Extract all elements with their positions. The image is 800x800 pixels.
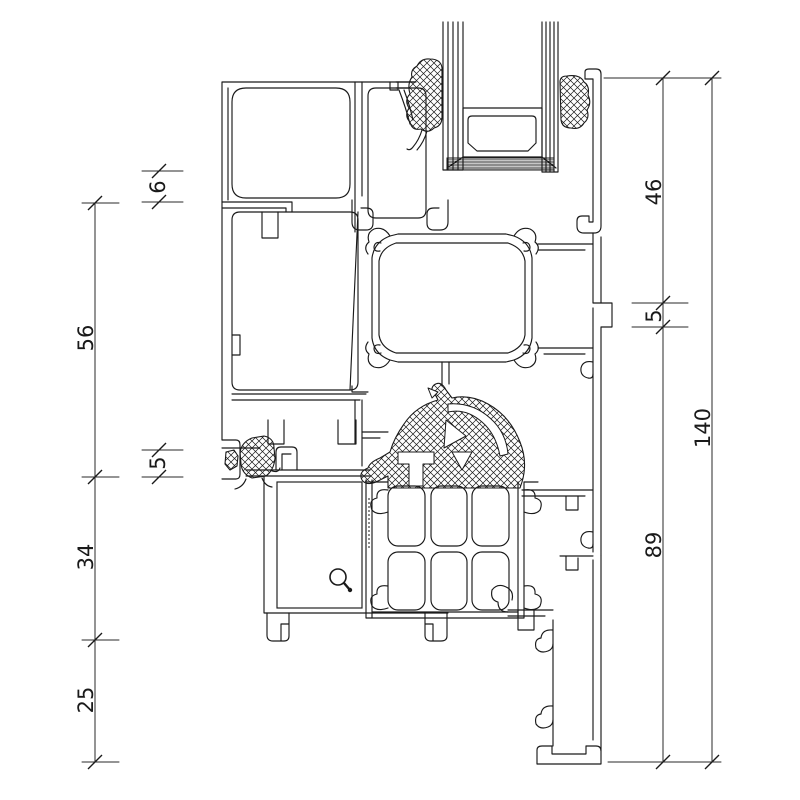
thermal-break-zone bbox=[366, 480, 541, 618]
sash-octagon-chamber bbox=[352, 228, 538, 392]
dim-label-34: 34 bbox=[74, 544, 98, 571]
dimension-ticks bbox=[88, 71, 719, 769]
sealant-band bbox=[447, 158, 554, 170]
frame-seal-left bbox=[222, 436, 297, 489]
dim-label-56: 56 bbox=[74, 325, 98, 352]
dim-label-25: 25 bbox=[74, 687, 98, 714]
lower-sash bbox=[246, 470, 448, 641]
lower-right-channel bbox=[492, 556, 601, 764]
dim-label-89: 89 bbox=[642, 532, 666, 559]
dim-label-6: 6 bbox=[146, 180, 170, 193]
right-glazing-gasket bbox=[560, 76, 590, 129]
left-glazing-gasket bbox=[407, 59, 442, 131]
octagon-gasket bbox=[240, 436, 275, 478]
glazing-unit bbox=[443, 22, 558, 172]
glazing-gaskets bbox=[396, 59, 590, 150]
dimension-annotations: 6 56 5 34 25 46 5 89 140 bbox=[74, 71, 721, 769]
dim-label-5-left: 5 bbox=[146, 456, 170, 469]
profile-section-drawing: 6 56 5 34 25 46 5 89 140 bbox=[0, 0, 800, 800]
magnifier-cursor-icon bbox=[330, 569, 352, 592]
central-gasket bbox=[361, 383, 525, 488]
dim-label-46: 46 bbox=[642, 179, 666, 206]
technical-drawing-canvas: 6 56 5 34 25 46 5 89 140 bbox=[0, 0, 800, 800]
outer-frame bbox=[222, 82, 448, 466]
dim-label-5-right: 5 bbox=[642, 309, 666, 322]
dim-label-140: 140 bbox=[691, 408, 715, 448]
